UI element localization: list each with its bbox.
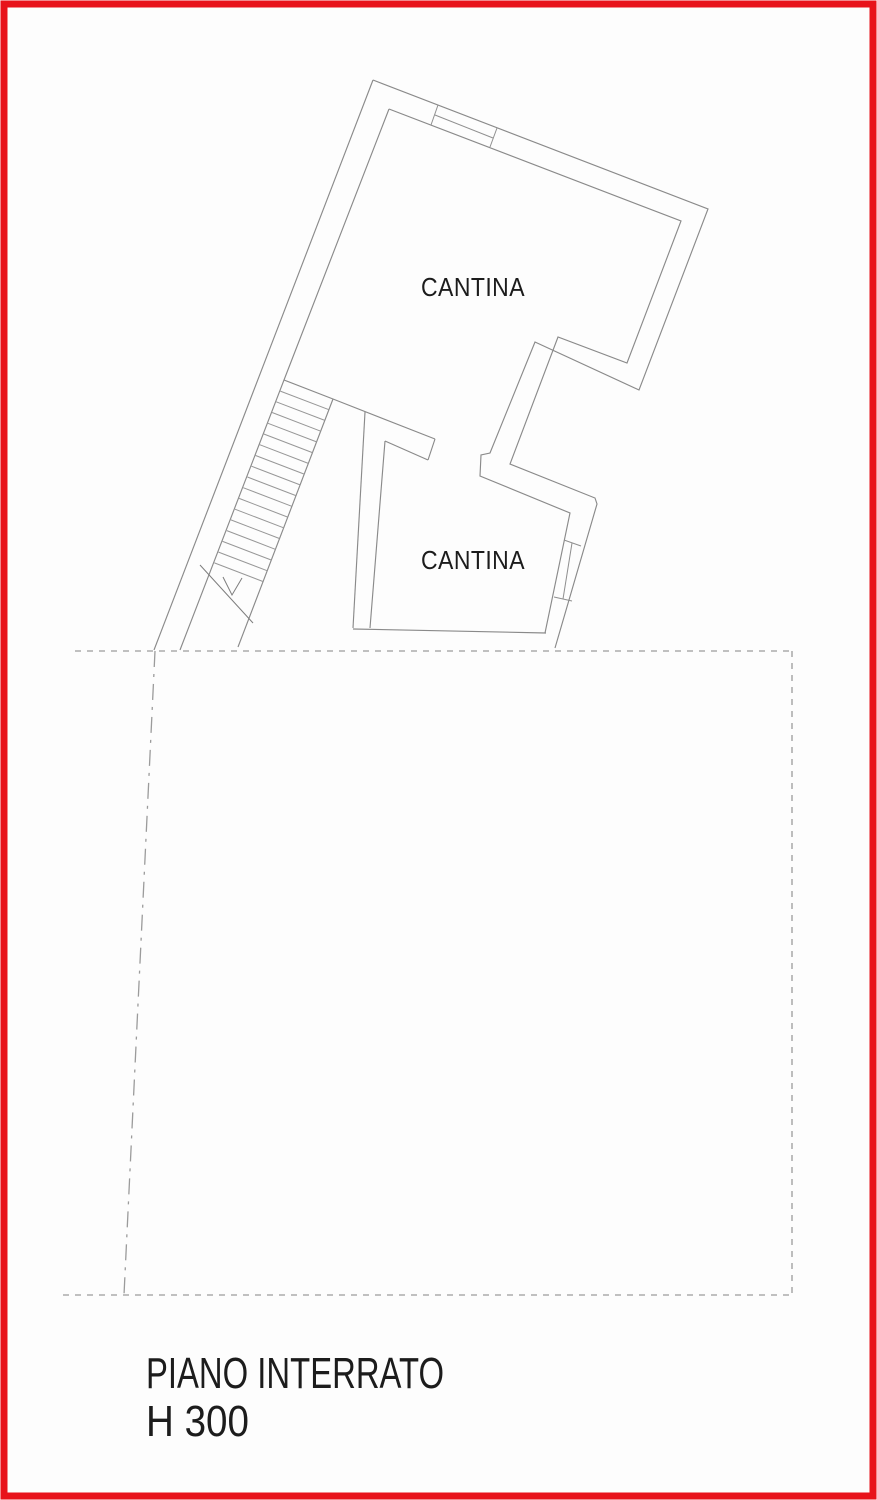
paper-background <box>0 0 877 1500</box>
lower-cantina-label: CANTINA <box>421 545 525 575</box>
scanned-floor-plan-page: CANTINA CANTINA PIANO INTERRATO H 300 <box>0 0 877 1500</box>
floor-plan-image: CANTINA CANTINA PIANO INTERRATO H 300 <box>0 0 877 1500</box>
caption-floor-height: H 300 <box>146 1397 249 1446</box>
upper-cantina-label: CANTINA <box>421 272 525 302</box>
caption-floor-name: PIANO INTERRATO <box>146 1349 444 1398</box>
